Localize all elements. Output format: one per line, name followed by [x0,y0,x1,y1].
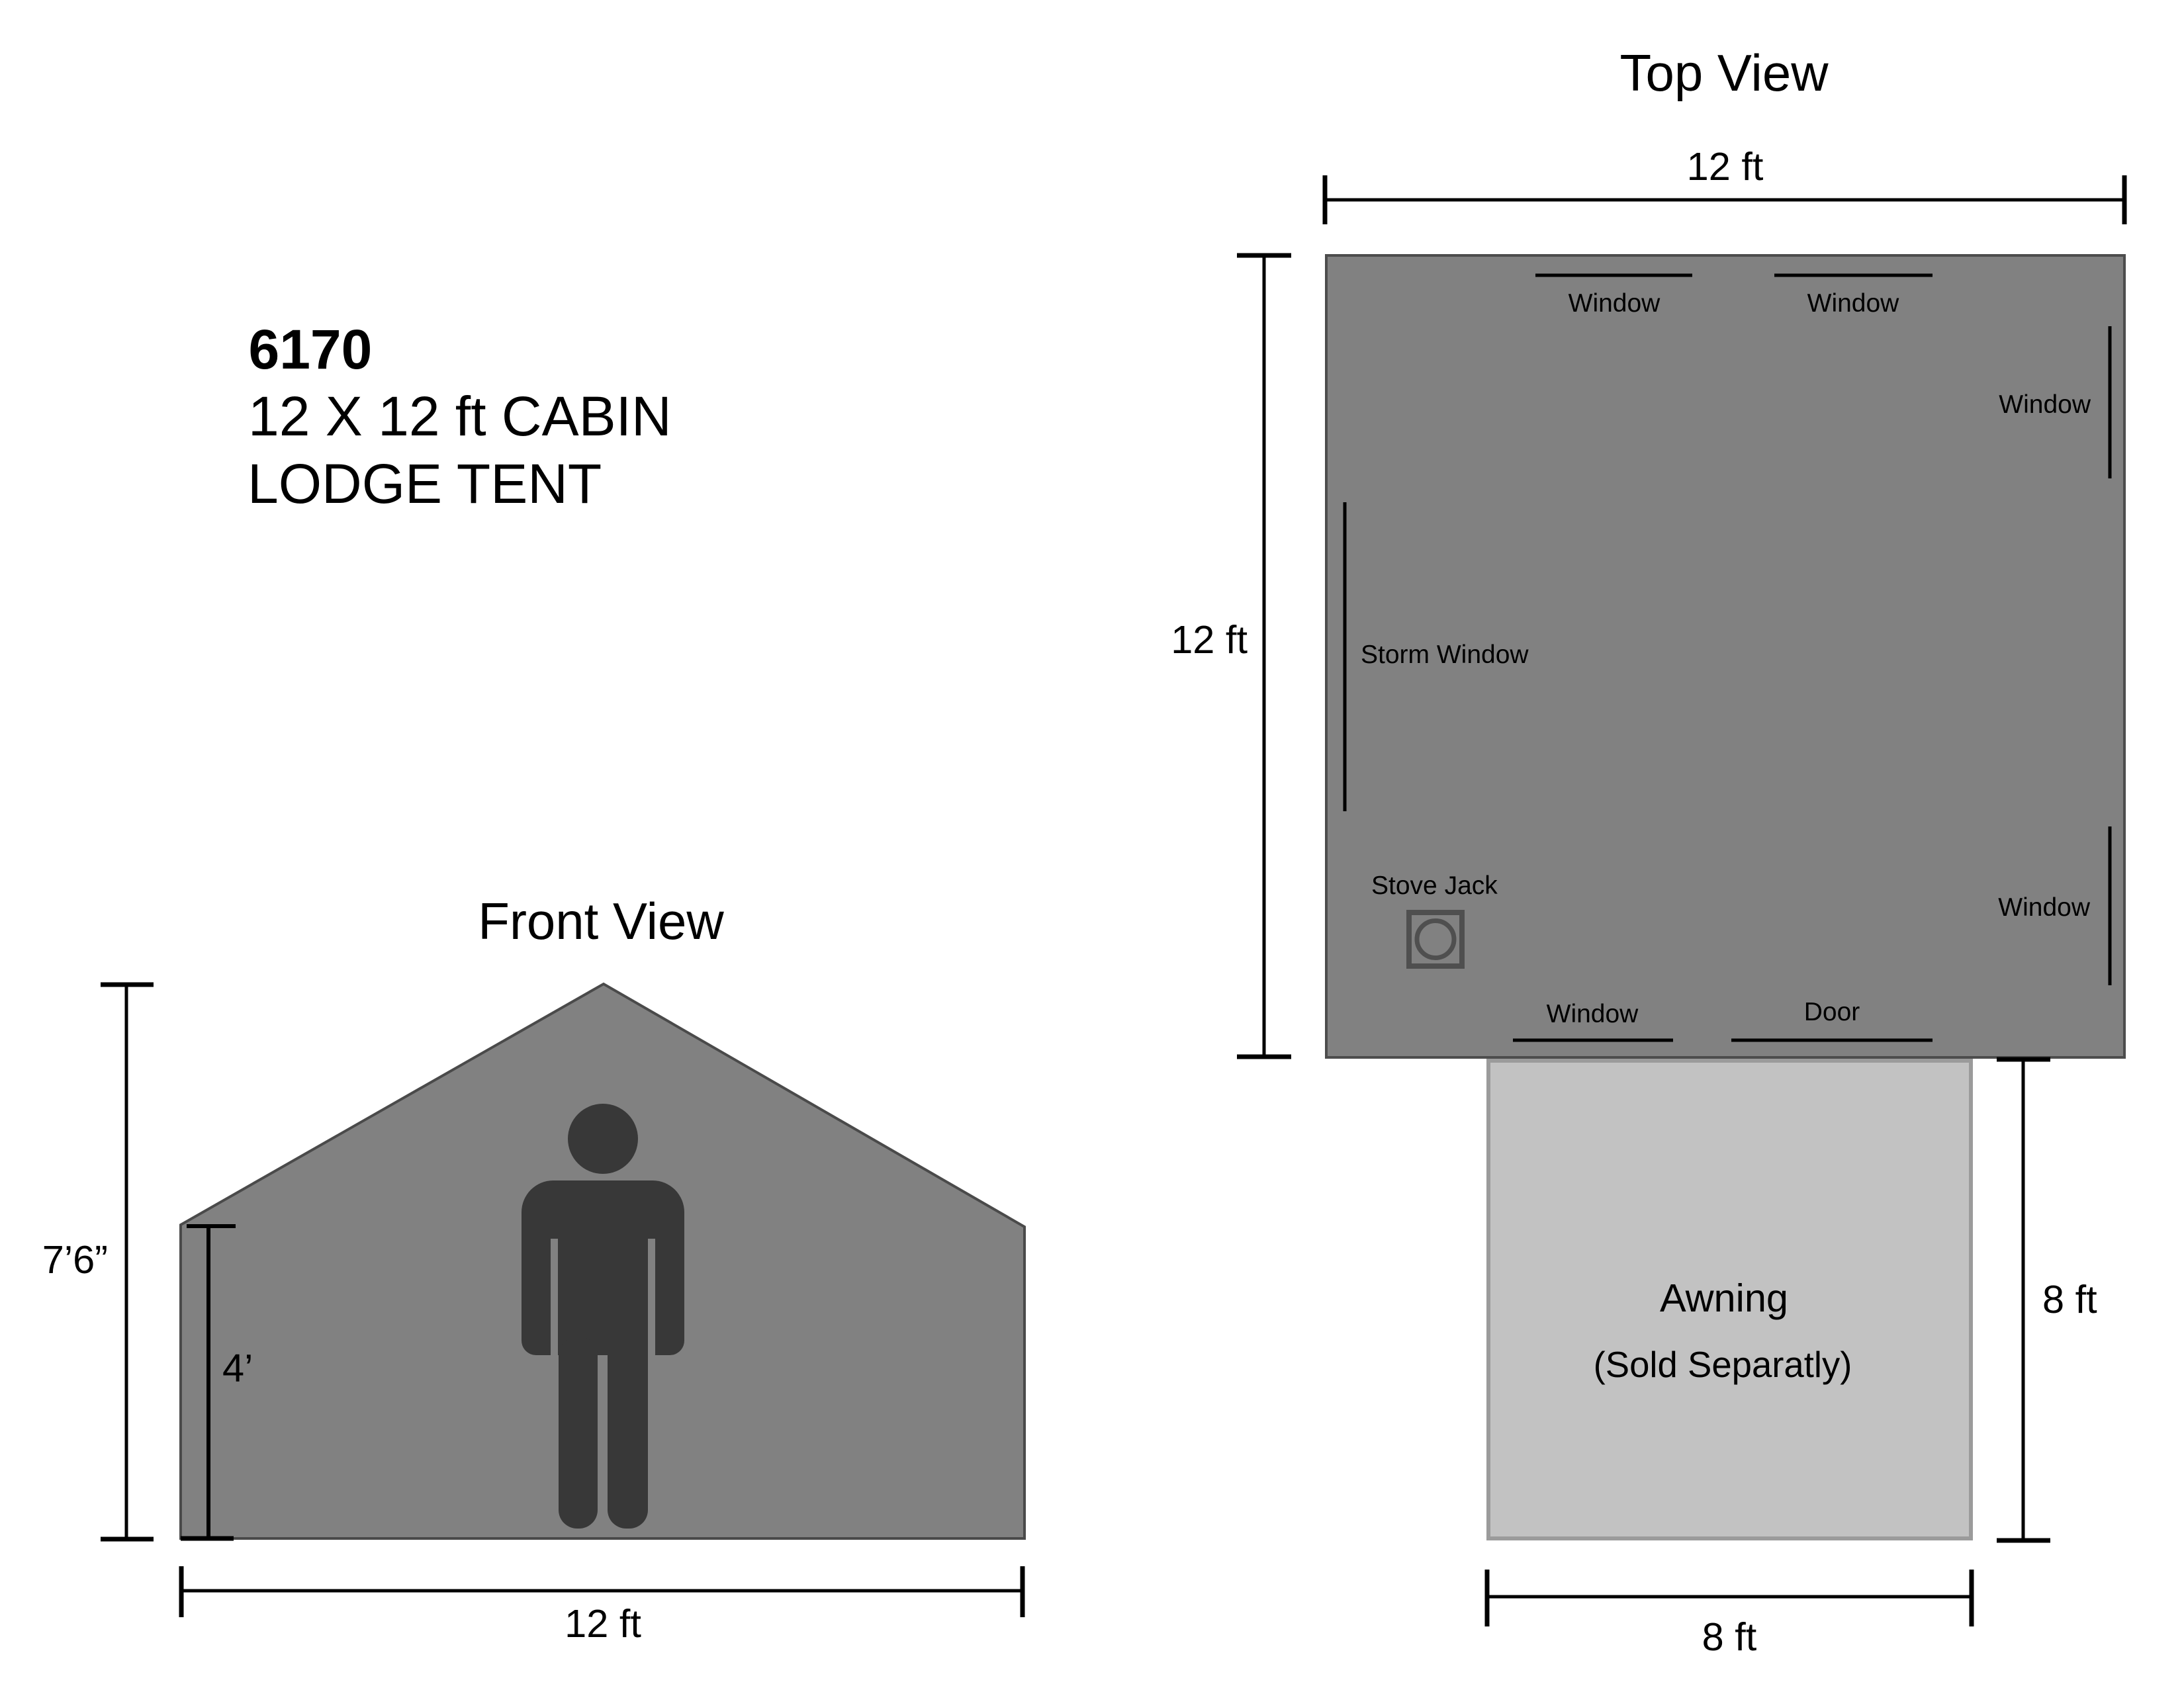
svg-text:Front View: Front View [478,892,724,950]
svg-text:Stove Jack: Stove Jack [1371,871,1498,900]
svg-text:Storm Window: Storm Window [1361,641,1529,669]
svg-text:Window: Window [1999,390,2091,419]
svg-text:Top View: Top View [1619,44,1829,102]
svg-text:12 ft: 12 ft [565,1601,641,1646]
svg-text:Window: Window [1807,289,1900,318]
svg-text:12 ft: 12 ft [1171,617,1248,662]
svg-text:Awning: Awning [1660,1276,1788,1320]
svg-text:LODGE TENT: LODGE TENT [248,453,602,515]
svg-text:Window: Window [1547,1000,1639,1028]
svg-text:8 ft: 8 ft [1702,1615,1757,1659]
svg-text:7’6”: 7’6” [42,1237,108,1282]
svg-text:Window: Window [1569,289,1661,318]
svg-text:6170: 6170 [249,318,373,380]
svg-text:8 ft: 8 ft [2042,1277,2097,1321]
svg-text:12 ft: 12 ft [1687,144,1764,189]
svg-text:(Sold Separatly): (Sold Separatly) [1594,1345,1852,1385]
svg-text:Window: Window [1998,893,2091,922]
svg-text:4’: 4’ [222,1346,253,1390]
svg-text:12 X 12 ft CABIN: 12 X 12 ft CABIN [248,385,672,447]
svg-text:Door: Door [1804,998,1860,1026]
